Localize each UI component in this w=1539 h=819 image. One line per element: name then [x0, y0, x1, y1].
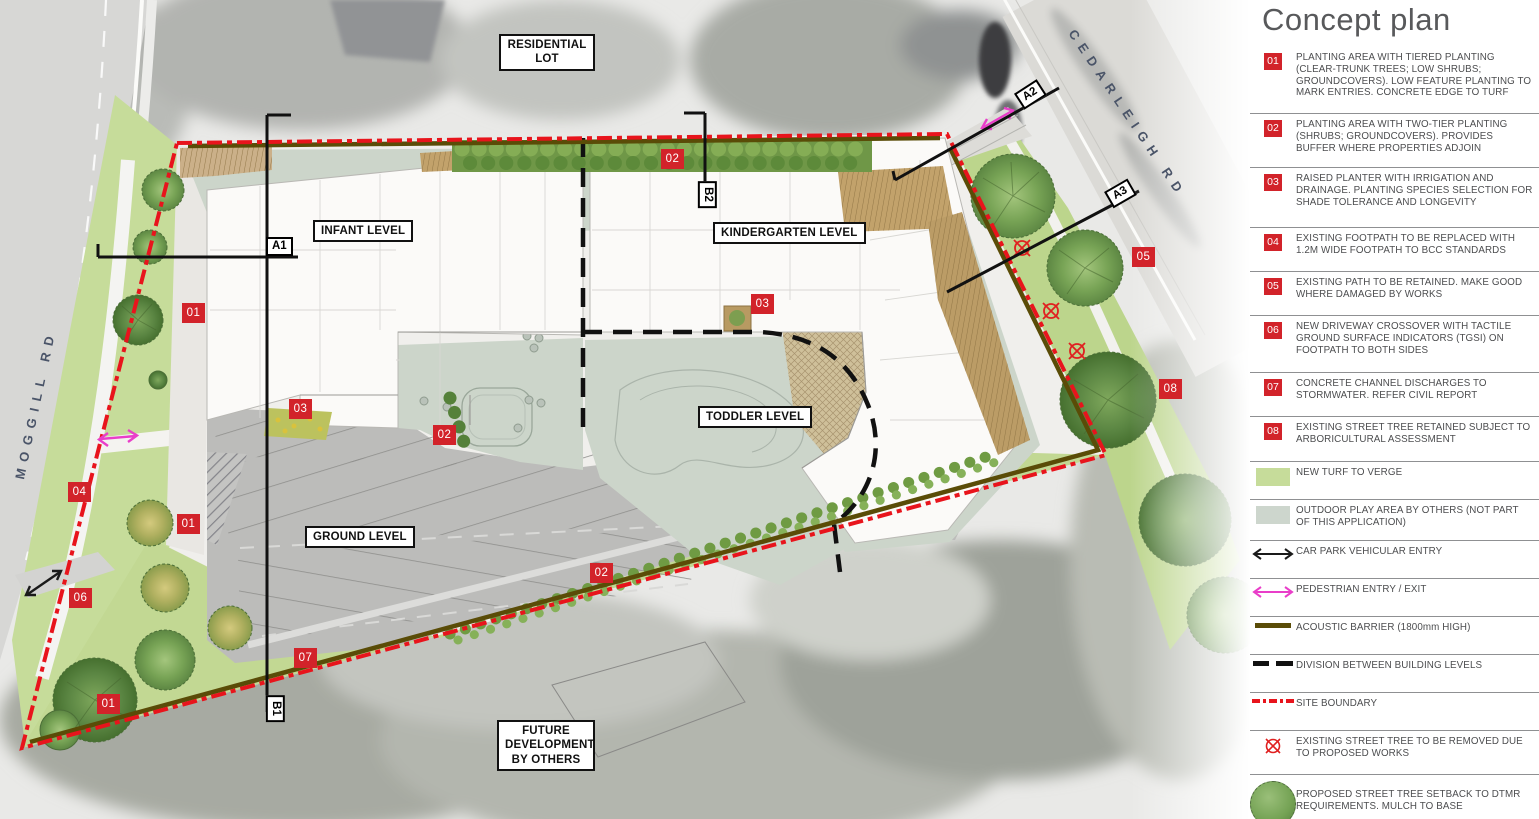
callout-01: 01	[97, 694, 120, 714]
callout-01: 01	[182, 303, 205, 323]
callout-03: 03	[751, 294, 774, 314]
legend-item: CAR PARK VEHICULAR ENTRY	[1250, 541, 1539, 579]
site-boundary-icon	[1252, 699, 1294, 703]
callout-04: 04	[68, 482, 91, 502]
pink-double-arrow-icon	[1251, 585, 1295, 599]
turf-swatch	[1256, 468, 1290, 486]
legend-num-04: 04	[1264, 234, 1282, 251]
legend-item: 03 RAISED PLANTER WITH IRRIGATION AND DR…	[1250, 168, 1539, 228]
label-kindergarten-level: KINDERGARTEN LEVEL	[713, 222, 866, 244]
legend-panel: Concept plan 01 PLANTING AREA WITH TIERE…	[1250, 0, 1539, 819]
concept-plan-page: MOGGILL RD CEDARLEIGH RD RESIDENTIAL LOT…	[0, 0, 1539, 819]
legend-num-05: 05	[1264, 278, 1282, 295]
acoustic-barrier-icon	[1255, 623, 1291, 628]
callout-05: 05	[1132, 247, 1155, 267]
tree-remove-icon	[1264, 737, 1282, 755]
play-area-swatch	[1256, 506, 1290, 524]
legend-item: ACOUSTIC BARRIER (1800mm HIGH)	[1250, 617, 1539, 655]
legend-num-01: 01	[1264, 53, 1282, 70]
callout-08: 08	[1159, 379, 1182, 399]
label-infant-level: INFANT LEVEL	[313, 220, 413, 242]
callout-03: 03	[289, 399, 312, 419]
callout-02: 02	[590, 563, 613, 583]
site-plan-drawing	[0, 0, 1250, 819]
section-marker-b1: B1	[266, 695, 285, 722]
proposed-street-tree-icon	[1250, 781, 1296, 819]
label-ground-level: GROUND LEVEL	[305, 526, 415, 548]
legend-item: OUTDOOR PLAY AREA BY OTHERS (NOT PART OF…	[1250, 500, 1539, 541]
legend-num-07: 07	[1264, 379, 1282, 396]
legend-item: 08 EXISTING STREET TREE RETAINED SUBJECT…	[1250, 417, 1539, 462]
label-residential-lot: RESIDENTIAL LOT	[499, 34, 595, 71]
callout-07: 07	[294, 648, 317, 668]
legend-item: 02 PLANTING AREA WITH TWO-TIER PLANTING …	[1250, 114, 1539, 168]
section-marker-a1: A1	[266, 237, 293, 256]
legend-num-02: 02	[1264, 120, 1282, 137]
legend-item: EXISTING STREET TREE TO BE REMOVED DUE T…	[1250, 731, 1539, 775]
legend-item: DIVISION BETWEEN BUILDING LEVELS	[1250, 655, 1539, 693]
legend-item: 05 EXISTING PATH TO BE RETAINED. MAKE GO…	[1250, 272, 1539, 316]
label-future-development: FUTURE DEVELOPMENT BY OTHERS	[497, 720, 595, 771]
callout-06: 06	[69, 588, 92, 608]
callout-02: 02	[433, 425, 456, 445]
label-toddler-level: TODDLER LEVEL	[698, 406, 812, 428]
legend-item: PROPOSED STREET TREE SETBACK TO DTMR REQ…	[1250, 775, 1539, 819]
legend-item: NEW TURF TO VERGE	[1250, 462, 1539, 500]
callout-01: 01	[177, 514, 200, 534]
callout-02: 02	[661, 149, 684, 169]
site-plan: MOGGILL RD CEDARLEIGH RD RESIDENTIAL LOT…	[0, 0, 1250, 819]
legend-num-08: 08	[1264, 423, 1282, 440]
page-title: Concept plan	[1262, 2, 1539, 38]
legend-item: 06 NEW DRIVEWAY CROSSOVER WITH TACTILE G…	[1250, 316, 1539, 373]
legend-item: 07 CONCRETE CHANNEL DISCHARGES TO STORMW…	[1250, 373, 1539, 417]
legend-item: 01 PLANTING AREA WITH TIERED PLANTING (C…	[1250, 47, 1539, 114]
black-double-arrow-icon	[1251, 547, 1295, 561]
section-marker-b2: B2	[698, 181, 717, 208]
legend-item: 04 EXISTING FOOTPATH TO BE REPLACED WITH…	[1250, 228, 1539, 272]
legend-num-06: 06	[1264, 322, 1282, 339]
legend-item: PEDESTRIAN ENTRY / EXIT	[1250, 579, 1539, 617]
legend-item: SITE BOUNDARY	[1250, 693, 1539, 731]
legend-rows: 01 PLANTING AREA WITH TIERED PLANTING (C…	[1250, 47, 1539, 819]
legend-num-03: 03	[1264, 174, 1282, 191]
division-line-icon	[1253, 661, 1293, 666]
